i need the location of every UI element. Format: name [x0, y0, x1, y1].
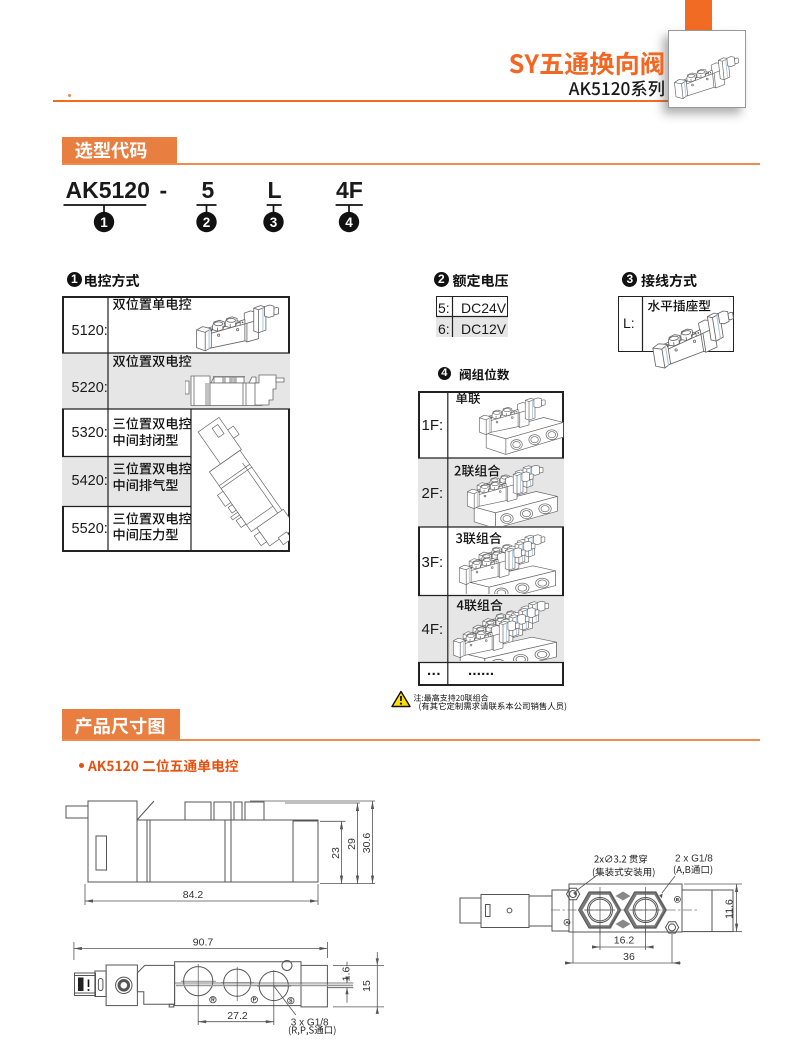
svg-text:29: 29	[346, 838, 358, 850]
svg-text:2: 2	[203, 215, 211, 230]
svg-text:1: 1	[100, 215, 108, 230]
svg-text:3: 3	[270, 215, 278, 230]
svg-text:27.2: 27.2	[227, 1010, 248, 1022]
svg-text:90.7: 90.7	[193, 937, 214, 949]
svg-text:30.6: 30.6	[361, 833, 373, 854]
svg-text:23: 23	[330, 847, 342, 859]
svg-text:A: A	[565, 920, 569, 926]
svg-text:16.2: 16.2	[614, 935, 635, 947]
svg-text:11.6: 11.6	[724, 899, 736, 919]
svg-text:2 x G1/8: 2 x G1/8	[675, 854, 713, 865]
svg-text:15: 15	[361, 980, 373, 992]
svg-text:84.2: 84.2	[183, 889, 204, 901]
svg-text:1.6: 1.6	[341, 967, 353, 982]
svg-text:4: 4	[345, 215, 353, 230]
svg-text:R: R	[211, 998, 215, 1004]
svg-text:3 x G1/8: 3 x G1/8	[291, 1018, 329, 1029]
svg-text:36: 36	[623, 951, 635, 963]
svg-text:B: B	[676, 897, 680, 903]
